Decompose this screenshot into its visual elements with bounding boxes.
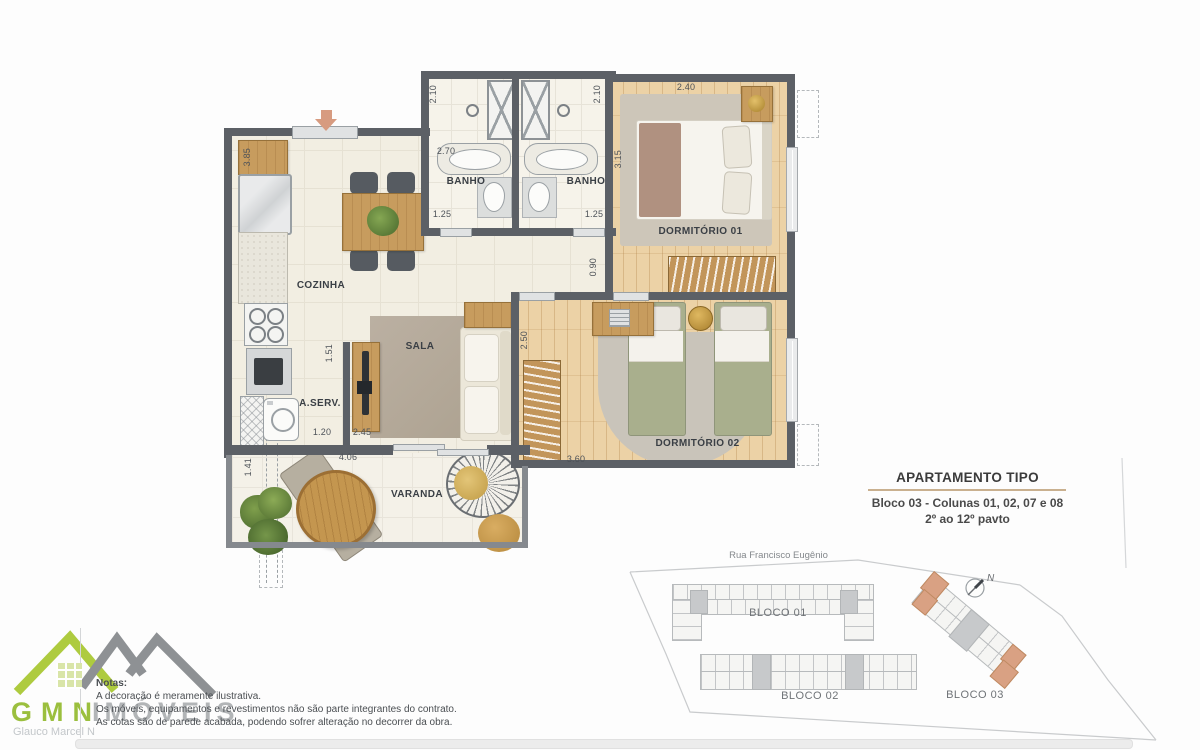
hanging-chair [446,450,520,518]
label-banho-right: BANHO [552,176,620,187]
dim-kitchen-depth: 3.85 [242,148,252,166]
dim-varanda-width: 4.06 [330,452,366,462]
compass-icon [966,579,984,597]
dim-kitchen-top: 2.70 [428,146,464,156]
bloco02-building [700,671,917,690]
dorm1-wardrobe [668,256,776,294]
sala-rug [370,316,464,438]
notes-line: Os móveis, equipamentos e revestimentos … [96,703,457,716]
dim-varanda-depth: 1.41 [243,458,253,476]
notes-heading: Notas: [96,677,457,690]
fridge [238,174,292,235]
logo-name: GMN [11,697,101,727]
label-dorm1: DORMITÓRIO 01 [628,226,773,237]
dim-dorm2-depth: 2.50 [519,331,529,349]
bath-door [440,228,472,237]
sofa [460,327,514,441]
dim-bath-right: 2.10 [592,85,602,103]
dorm2-desk [592,302,654,336]
dim-bath-left: 2.10 [428,85,438,103]
oven [246,348,292,395]
ac-unit-slot [797,424,819,466]
kitchen-counter [238,232,288,304]
notes-line: A decoração é meramente ilustrativa. [96,690,457,703]
floorplan-page: 2.70 2.10 2.10 2.40 3.15 1.25 1.25 0.90 … [0,0,1200,750]
notes-line: As cotas são de parede acabada, podendo … [96,716,457,729]
label-cozinha: COZINHA [276,280,366,291]
label-varanda: VARANDA [382,489,452,500]
logo-agent: Glauco Marcel N [13,726,95,738]
bloco02-label: BLOCO 02 [760,690,860,702]
label-sala: SALA [392,341,448,352]
entry-arrow-icon [315,110,337,131]
logo-window-icon [56,663,82,689]
towel-ring-icon [557,104,570,117]
dim-dorm1-width: 2.40 [668,82,704,92]
dorm2-window [786,338,798,422]
tv-panel [352,342,380,432]
ac-unit-slot [797,90,819,138]
notes-block: Notas: A decoração é meramente ilustrati… [96,677,457,729]
dim-aserv-width: 1.20 [306,427,338,437]
varanda-table [296,470,376,548]
dim-dorm1-depth: 3.15 [613,150,623,168]
side-table [464,302,512,328]
bloco03-label: BLOCO 03 [925,689,1025,701]
water-heater [240,396,264,446]
dim-dorm2-width: 3.60 [558,454,594,464]
dining-chair [350,249,378,271]
dining-chair [350,172,378,194]
street-label: Rua Francisco Eugênio [716,550,841,561]
bath-counter [524,143,598,175]
dining-chair [387,249,415,271]
label-dorm2: DORMITÓRIO 02 [625,438,770,449]
dorm2-nightstand [688,306,713,331]
dorm2-door [519,292,555,301]
dim-bath-right-width: 1.25 [578,209,610,219]
dorm1-nightstand [741,86,773,122]
dim-bath-left-width: 1.25 [426,209,458,219]
dim-sala-pass: 1.51 [324,344,334,362]
label-aserv: A.SERV. [286,398,354,409]
shower-box [521,80,550,140]
dorm2-bed [714,302,772,436]
stove [244,303,288,346]
label-banho-left: BANHO [432,176,500,187]
dining-chair [387,172,415,194]
dorm1-window [786,147,798,232]
towel-ring-icon [466,104,479,117]
table-plant [367,206,399,236]
dorm1-bed [636,120,772,220]
dorm1-door [613,292,649,301]
varanda-sliding-door [437,449,489,456]
bloco01-label: BLOCO 01 [728,607,828,619]
dim-sala-width: 2.45 [346,427,378,437]
compass-north-label: N [987,573,995,584]
dim-hall: 0.90 [588,258,598,276]
bath-door [573,228,605,237]
